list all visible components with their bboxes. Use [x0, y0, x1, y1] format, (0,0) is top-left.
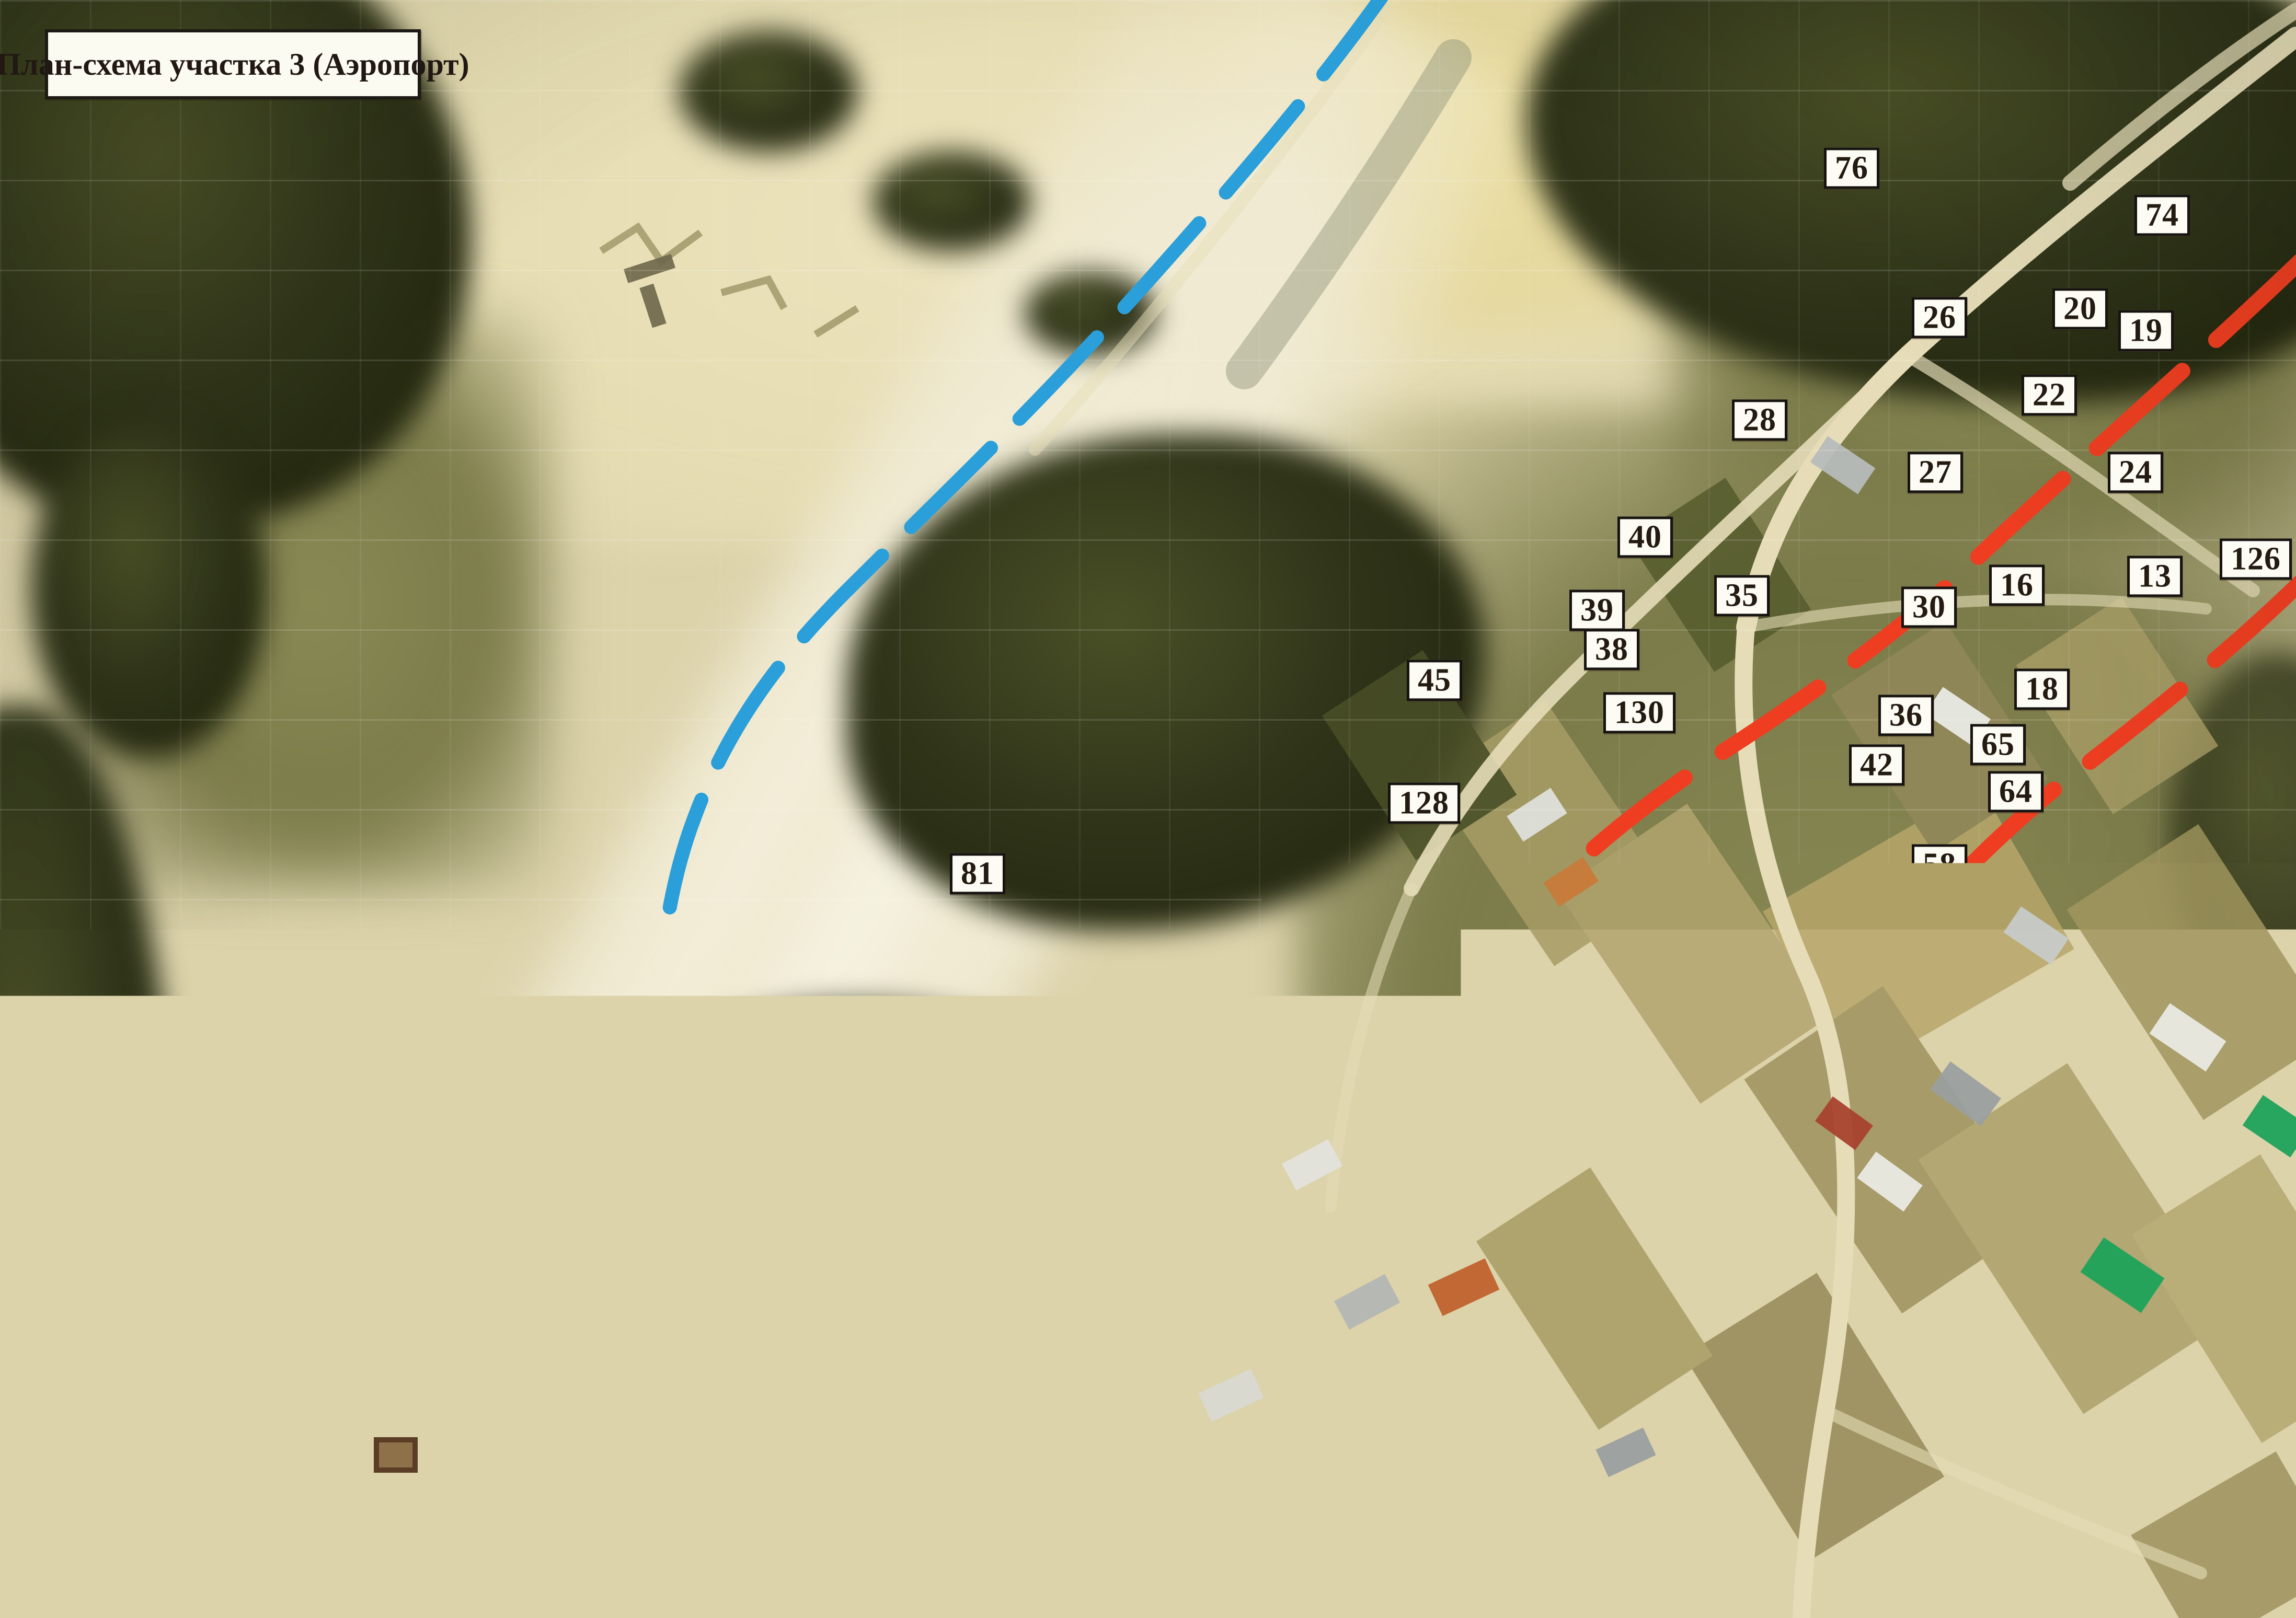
- parcel-number-label: 78: [1539, 1087, 1594, 1128]
- parcel-number-label: 85: [1066, 1065, 1121, 1106]
- parcel-number-label: 20: [2052, 288, 2108, 329]
- parcel-number-label: 120: [1373, 905, 1445, 946]
- parcel-number-label: 112: [1134, 985, 1205, 1026]
- parcel-number-label: 22: [2022, 374, 2077, 415]
- parcel-number-label: 13: [2127, 556, 2183, 597]
- parcel-number-label: 28: [1732, 399, 1787, 441]
- scan-edge-band: [0, 1608, 2296, 1618]
- parcel-number-label: 74: [2134, 194, 2190, 236]
- parcel-number-label: 84: [1051, 1113, 1107, 1154]
- parcel-number-label: 64: [1988, 771, 2044, 812]
- aerial-map-canvas: 7674262019222827244035161312639383045130…: [0, 0, 2296, 1618]
- zmr-250m-caption-line1: ЗМР МГ Надым – Пунга IV 250 м: [890, 1535, 1321, 1572]
- parcel-number-label: 38: [1584, 629, 1639, 670]
- parcel-number-label: 103: [1259, 1303, 1331, 1345]
- map-title: План-схема участка 3 (Аэропорт): [45, 29, 421, 99]
- parcel-number-label: 39: [1569, 590, 1625, 631]
- parcel-number-label: 36: [1878, 695, 1934, 736]
- parcel-number-label: 86: [1273, 1192, 1329, 1233]
- parcel-number-label: 76: [1824, 147, 1879, 189]
- parcel-number-label: 98: [1584, 1479, 1639, 1520]
- parcel-number-label: 105: [1204, 1093, 1276, 1134]
- zmr-250m-caption: ЗМР МГ Надым – Пунга IV 250 м СП 36.1333…: [917, 1524, 1293, 1618]
- parcel-number-label: 130: [1603, 692, 1675, 733]
- parcel-number-label: 128: [1388, 782, 1460, 824]
- pipeline-caption-text: МГ Надым – Пунга IV 391 км: [19, 1536, 414, 1569]
- parcel-number-label: 18: [2014, 668, 2070, 710]
- map-title-text: План-схема участка 3 (Аэропорт): [0, 47, 469, 83]
- parcel-number-label: 30: [1901, 586, 1957, 628]
- parcel-number-label: 122: [1510, 914, 1582, 955]
- parcel-number-label: 26: [1912, 297, 1967, 338]
- parcel-number-label: 126: [2220, 538, 2292, 580]
- parcel-number-label: 134: [1734, 897, 1806, 938]
- parcel-labels-layer: 7674262019222827244035161312639383045130…: [0, 0, 2296, 1618]
- parcel-number-label: 100: [1177, 1412, 1249, 1453]
- zmr-350m-caption-line2: СП 36.133330.2012 таб.4 п.1: [1701, 1574, 2049, 1611]
- parcel-number-label: 95: [1370, 1321, 1426, 1362]
- parcel-number-label: 81: [950, 853, 1005, 894]
- zmr-350m-caption-line1: ЗМР МГ Надым – Пунга IV 350 м: [1660, 1538, 2090, 1574]
- parcel-number-label: 42: [1849, 744, 1904, 785]
- pipeline-caption: МГ Надым – Пунга IV 391 км: [51, 1522, 383, 1582]
- parcel-number-label: 92: [1344, 1394, 1399, 1436]
- parcel-number-label: 47: [1698, 1028, 1753, 1070]
- parcel-number-label: 77: [1595, 1373, 1651, 1415]
- parcel-number-label: 58: [1912, 844, 1967, 885]
- parcel-number-label: 61: [1617, 1298, 1673, 1339]
- parcel-number-label: 45: [1407, 660, 1462, 701]
- parcel-number-label: 65: [1970, 724, 2026, 765]
- parcel-number-label: 27: [1908, 452, 1963, 493]
- parcel-number-label: 35: [1714, 575, 1770, 616]
- parcel-number-label: 114: [1416, 1192, 1486, 1233]
- parcel-number-label: 24: [2108, 452, 2163, 493]
- parcel-number-label: 16: [1989, 564, 2045, 606]
- parcel-number-label: 40: [1617, 516, 1673, 558]
- parcel-number-label: 19: [2118, 310, 2174, 351]
- parcel-number-label: 110: [1334, 1031, 1404, 1072]
- zmr-250m-caption-line2: СП 36.133330.2012 таб.4 п.2: [932, 1572, 1280, 1609]
- zmr-350m-caption: ЗМР МГ Надым – Пунга IV 350 м СП 36.1333…: [1686, 1530, 2063, 1618]
